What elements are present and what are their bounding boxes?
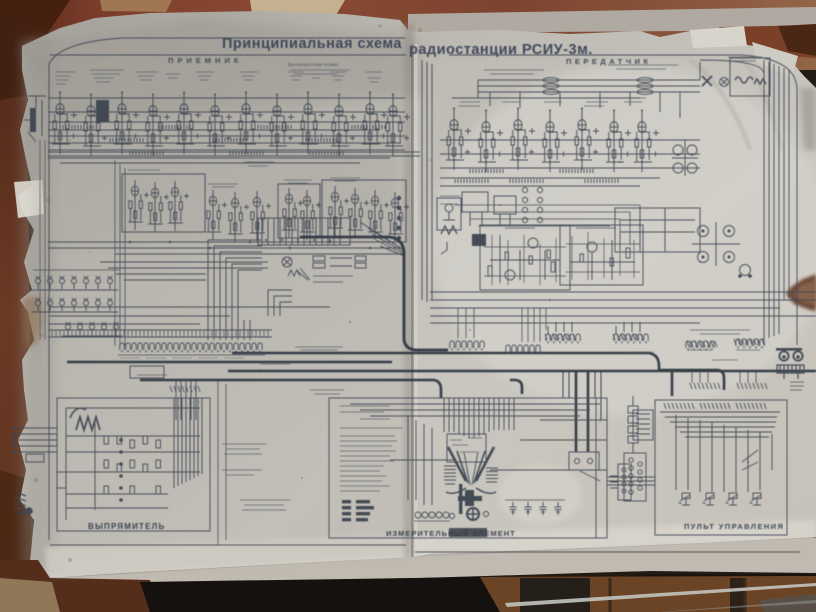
svg-text:радиостанции РСИУ-3м.: радиостанции РСИУ-3м. — [409, 42, 593, 58]
svg-text:ПУЛЬТ УПРАВЛЕНИЯ: ПУЛЬТ УПРАВЛЕНИЯ — [684, 522, 784, 531]
svg-text:Высокочастотная головка: Высокочастотная головка — [288, 62, 339, 67]
svg-text:ПРИЕМНИК: ПРИЕМНИК — [168, 56, 242, 65]
svg-text:ВЫПРЯМИТЕЛЬ: ВЫПРЯМИТЕЛЬ — [88, 522, 165, 531]
